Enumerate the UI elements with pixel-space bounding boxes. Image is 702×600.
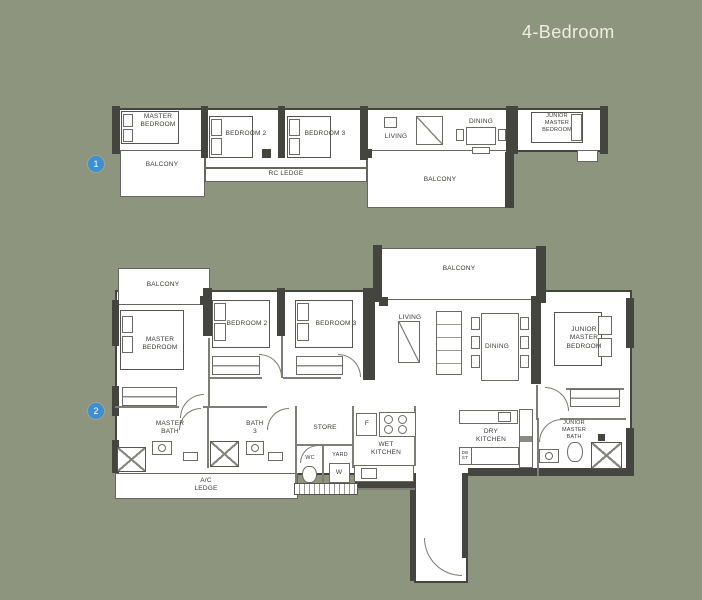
partition: [203, 406, 267, 408]
wall-segment: [277, 288, 285, 336]
plan1-label-balcony-left: BALCONY: [146, 161, 178, 169]
pillow: [289, 138, 300, 155]
plan1-ledge-right: [577, 150, 598, 162]
floorplan-page: 4-Bedroom 1 2 MASTER BEDROOM BEDROOM 2 B…: [0, 0, 702, 600]
chair: [520, 355, 529, 368]
plan2-label-wet-kitchen: WET KITCHEN: [371, 441, 401, 458]
shower: [210, 441, 239, 467]
burner-icon: [398, 415, 407, 424]
wall-segment: [112, 300, 119, 346]
partition: [295, 444, 353, 446]
plan2-label-yard: YARD: [332, 452, 348, 459]
pillow: [214, 303, 226, 321]
plan2-label-master-bath: MASTER BATH: [156, 420, 184, 437]
partition: [207, 406, 209, 468]
burner-icon: [398, 425, 407, 434]
plan2-balcony-top: [378, 248, 540, 300]
plan2-label-washer: W: [336, 469, 342, 477]
plan1-label-junior-master-bedroom: JUNIOR MASTER BEDROOM: [542, 113, 572, 134]
plan2-label-bath-3: BATH 3: [246, 420, 264, 437]
wardrobe: [212, 356, 260, 375]
shelf-column: [519, 409, 533, 468]
diamond-marker: [200, 296, 209, 305]
wall-segment: [600, 106, 608, 154]
shower: [591, 442, 622, 469]
vanity: [183, 452, 198, 461]
level-1-badge[interactable]: 1: [88, 156, 104, 172]
burner-icon: [384, 425, 393, 434]
pillow: [214, 323, 226, 341]
wardrobe: [570, 389, 620, 407]
partition: [208, 338, 210, 408]
dining-table: [466, 127, 496, 145]
plan2-label-ac-ledge: A/C LEDGE: [194, 477, 217, 494]
wall-segment: [112, 386, 119, 416]
plan2-label-dining: DINING: [485, 343, 509, 351]
basin-icon: [545, 452, 553, 460]
plan2-label-store: STORE: [313, 424, 336, 432]
wall-segment: [201, 106, 208, 158]
plan1-balcony-left: [120, 150, 205, 197]
plan1-label-living: LIVING: [385, 133, 408, 141]
chair: [520, 336, 529, 349]
armchair: [384, 117, 397, 128]
diamond-marker: [598, 434, 605, 441]
pillow: [571, 114, 582, 141]
plan2-label-bedroom2: BEDROOM 2: [227, 320, 268, 328]
diamond-marker: [363, 149, 372, 158]
pillow: [211, 119, 222, 136]
chair: [456, 129, 464, 141]
toilet: [567, 442, 583, 462]
toilet: [302, 466, 317, 483]
plan2-label-balcony-top: BALCONY: [443, 265, 475, 273]
wall-segment: [536, 246, 546, 303]
page-title: 4-Bedroom: [522, 22, 615, 43]
partition: [295, 406, 297, 490]
chair: [471, 317, 480, 330]
chair: [471, 336, 480, 349]
plan1-label-master-bedroom: MASTER BEDROOM: [141, 113, 176, 130]
plan2-label-fridge: F: [365, 420, 369, 428]
plan2-label-bedroom3: BEDROOM 3: [316, 320, 357, 328]
basin-icon: [158, 444, 166, 452]
partition: [536, 385, 538, 420]
diamond-marker: [379, 297, 388, 306]
wall-segment: [506, 106, 518, 154]
wardrobe: [296, 356, 343, 375]
sofa: [436, 311, 462, 375]
plan2-label-living: LIVING: [399, 314, 422, 322]
wall-segment: [462, 473, 468, 558]
wall-segment: [505, 152, 514, 208]
chair: [520, 317, 529, 330]
pillow: [122, 316, 133, 333]
partition: [352, 406, 354, 468]
plan1-label-dining: DINING: [469, 118, 493, 126]
plan2-label-junior-master-bedroom: JUNIOR MASTER BEDROOM: [567, 326, 602, 351]
partition: [537, 418, 539, 476]
chair: [472, 147, 490, 154]
wall-segment: [468, 468, 568, 476]
shower: [117, 447, 146, 472]
plan1-label-balcony-main: BALCONY: [424, 176, 456, 184]
burner-icon: [384, 415, 393, 424]
wardrobe: [122, 387, 177, 406]
tv-console: [398, 321, 420, 363]
level-2-badge[interactable]: 2: [88, 403, 104, 419]
pillow: [297, 323, 309, 341]
plan2-label-db-st: DB ST: [462, 450, 469, 460]
plan1-label-bedroom3: BEDROOM 3: [305, 130, 346, 138]
diamond-marker: [262, 149, 271, 158]
vanity: [268, 452, 283, 461]
wall-segment: [531, 296, 541, 384]
plan2-label-master-bedroom: MASTER BEDROOM: [143, 336, 178, 353]
chair: [498, 129, 506, 141]
wall-segment: [363, 288, 375, 380]
plan2-label-dry-kitchen: DRY KITCHEN: [476, 428, 506, 445]
chair: [471, 355, 480, 368]
pillow: [211, 138, 222, 155]
wall-segment: [112, 106, 120, 154]
pillow: [123, 114, 133, 127]
plan1-label-rc-ledge: RC LEDGE: [269, 170, 304, 178]
partition: [115, 406, 179, 408]
vent-ledge: [294, 483, 358, 495]
sofa-bed: [416, 116, 443, 145]
plan2-label-balcony-left: BALCONY: [147, 281, 179, 289]
plan1-label-bedroom2: BEDROOM 2: [226, 130, 267, 138]
wall-segment: [278, 106, 285, 158]
kitchen-sink: [361, 468, 377, 479]
pillow: [289, 119, 300, 136]
partition: [208, 377, 262, 379]
wall-segment: [566, 468, 628, 476]
pillow: [122, 336, 133, 353]
plan2-label-junior-master-bath: JUNIOR MASTER BATH: [562, 420, 586, 441]
wall-segment: [626, 298, 634, 348]
partition: [283, 377, 341, 379]
basin-icon: [251, 444, 259, 452]
plan2-label-wc: WC: [305, 455, 315, 462]
pillow: [297, 303, 309, 321]
kitchen-sink: [498, 412, 511, 422]
pillow: [123, 129, 133, 142]
